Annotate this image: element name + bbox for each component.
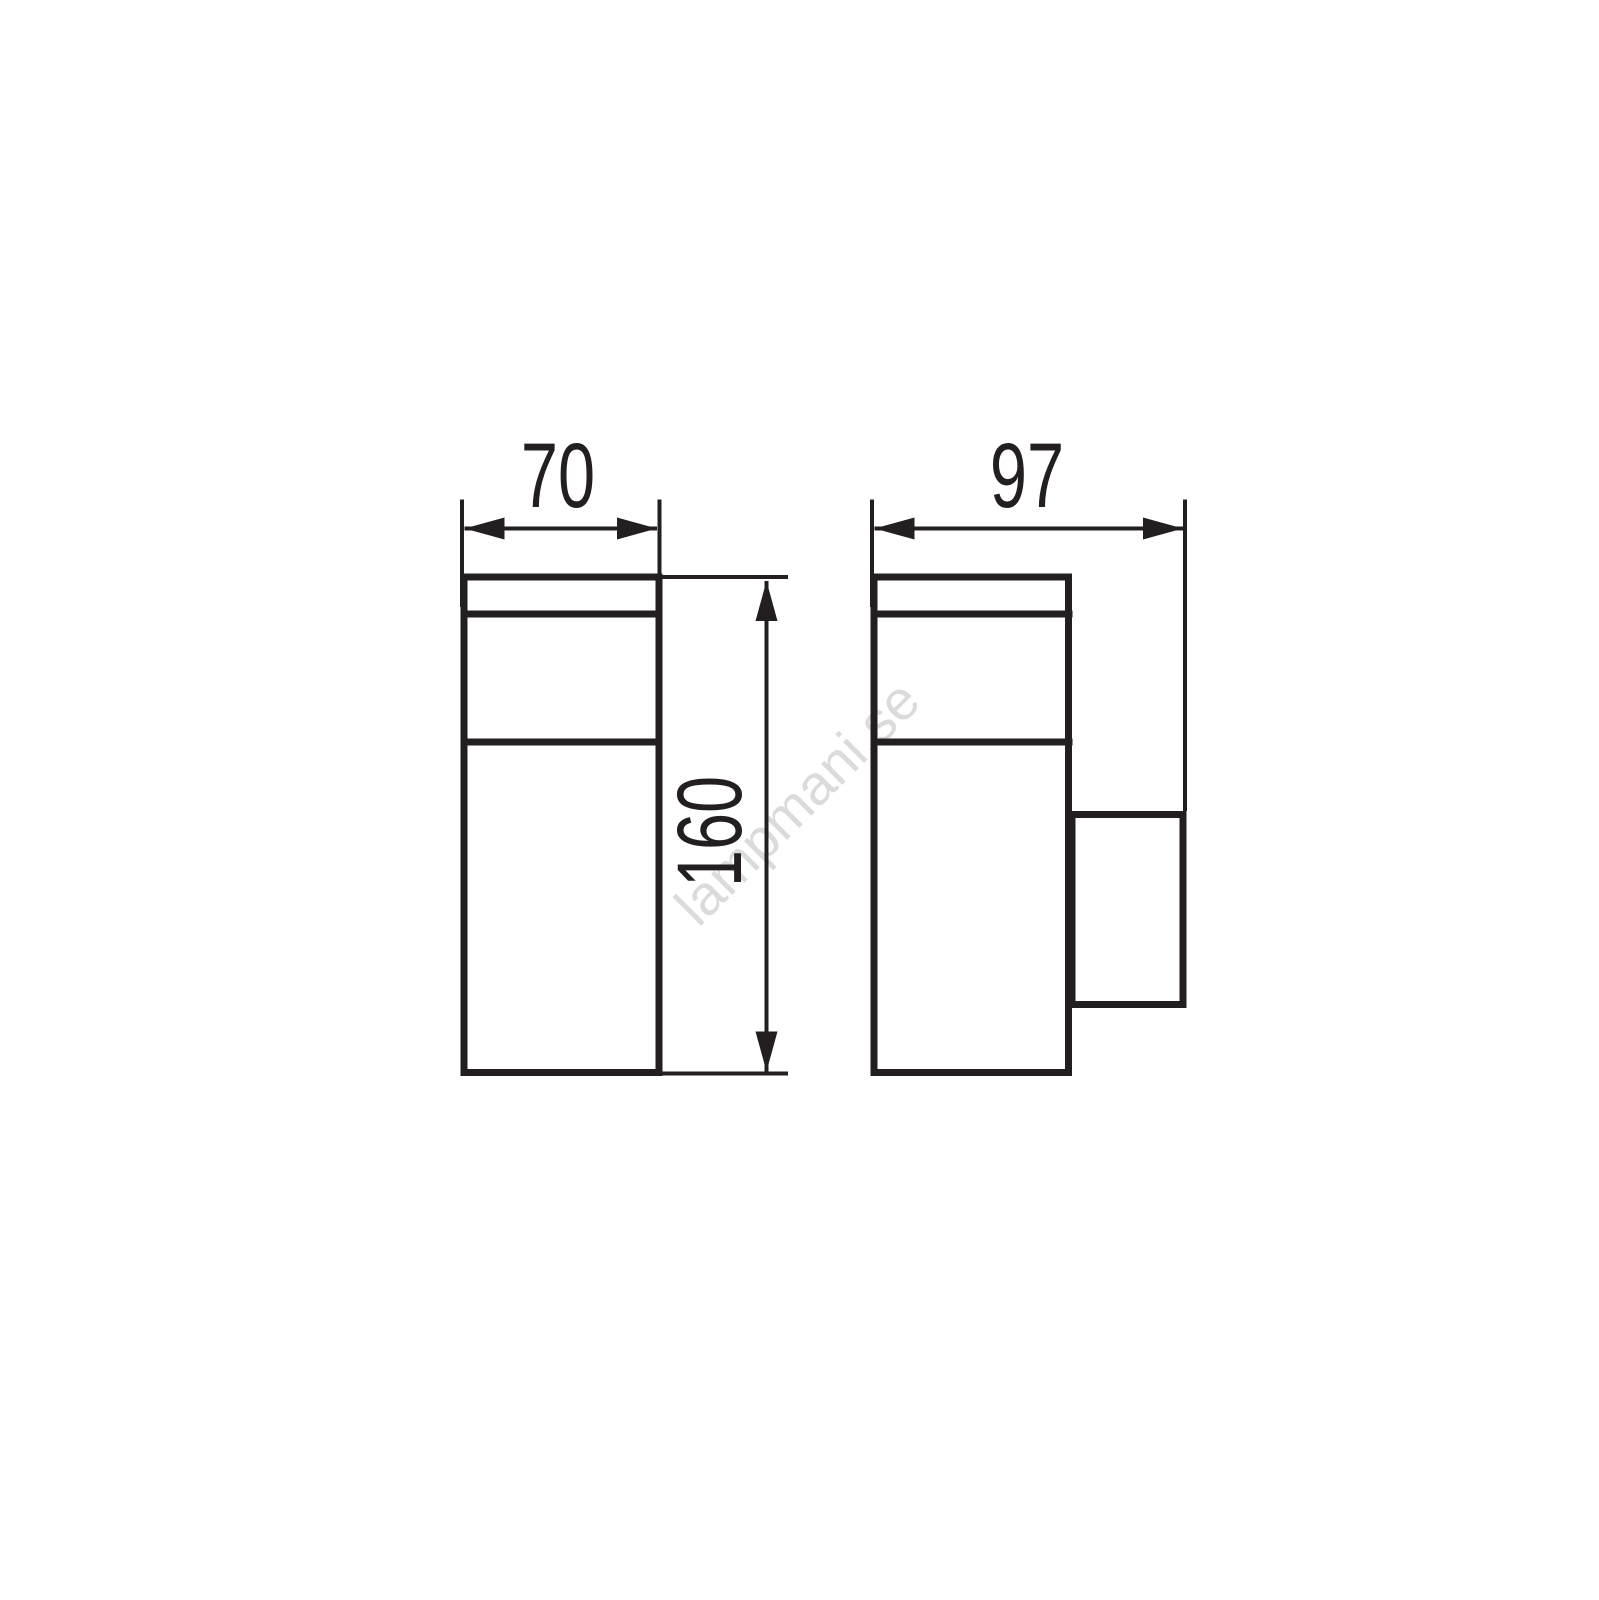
svg-text:97: 97	[990, 425, 1064, 528]
svg-text:160: 160	[659, 776, 762, 887]
svg-text:70: 70	[521, 425, 595, 528]
